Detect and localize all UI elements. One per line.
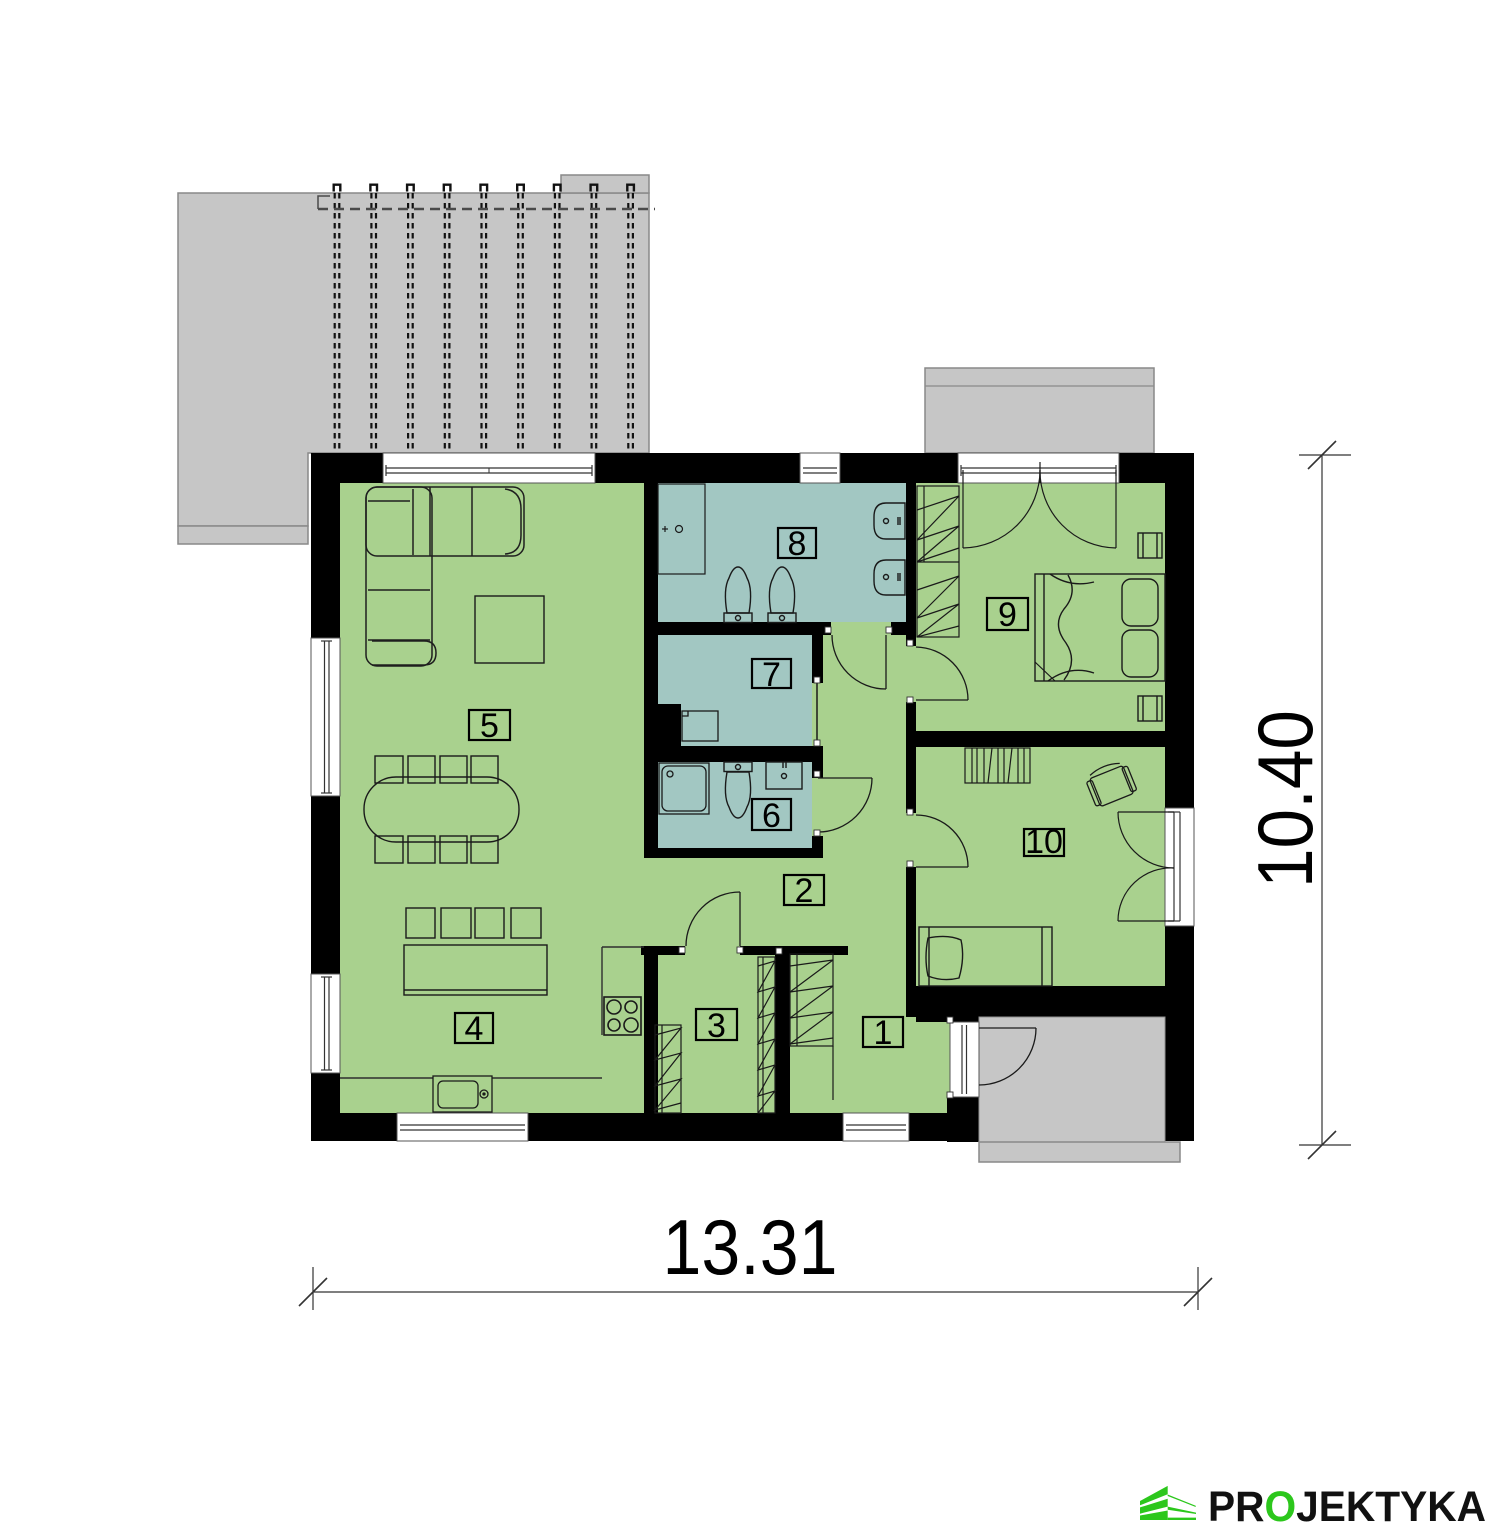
svg-text:7: 7 [762, 656, 781, 694]
svg-text:1: 1 [874, 1014, 893, 1052]
svg-text:2: 2 [795, 872, 814, 910]
svg-text:PROJEKTYKA: PROJEKTYKA [1208, 1483, 1486, 1531]
svg-text:5: 5 [480, 707, 499, 745]
svg-text:3: 3 [707, 1007, 726, 1045]
svg-text:6: 6 [762, 797, 781, 835]
svg-text:4: 4 [465, 1010, 484, 1048]
svg-text:9: 9 [998, 596, 1017, 634]
svg-text:8: 8 [788, 525, 807, 563]
svg-text:10: 10 [1025, 823, 1063, 861]
svg-text:10.40: 10.40 [1241, 710, 1329, 888]
svg-text:13.31: 13.31 [663, 1203, 838, 1291]
